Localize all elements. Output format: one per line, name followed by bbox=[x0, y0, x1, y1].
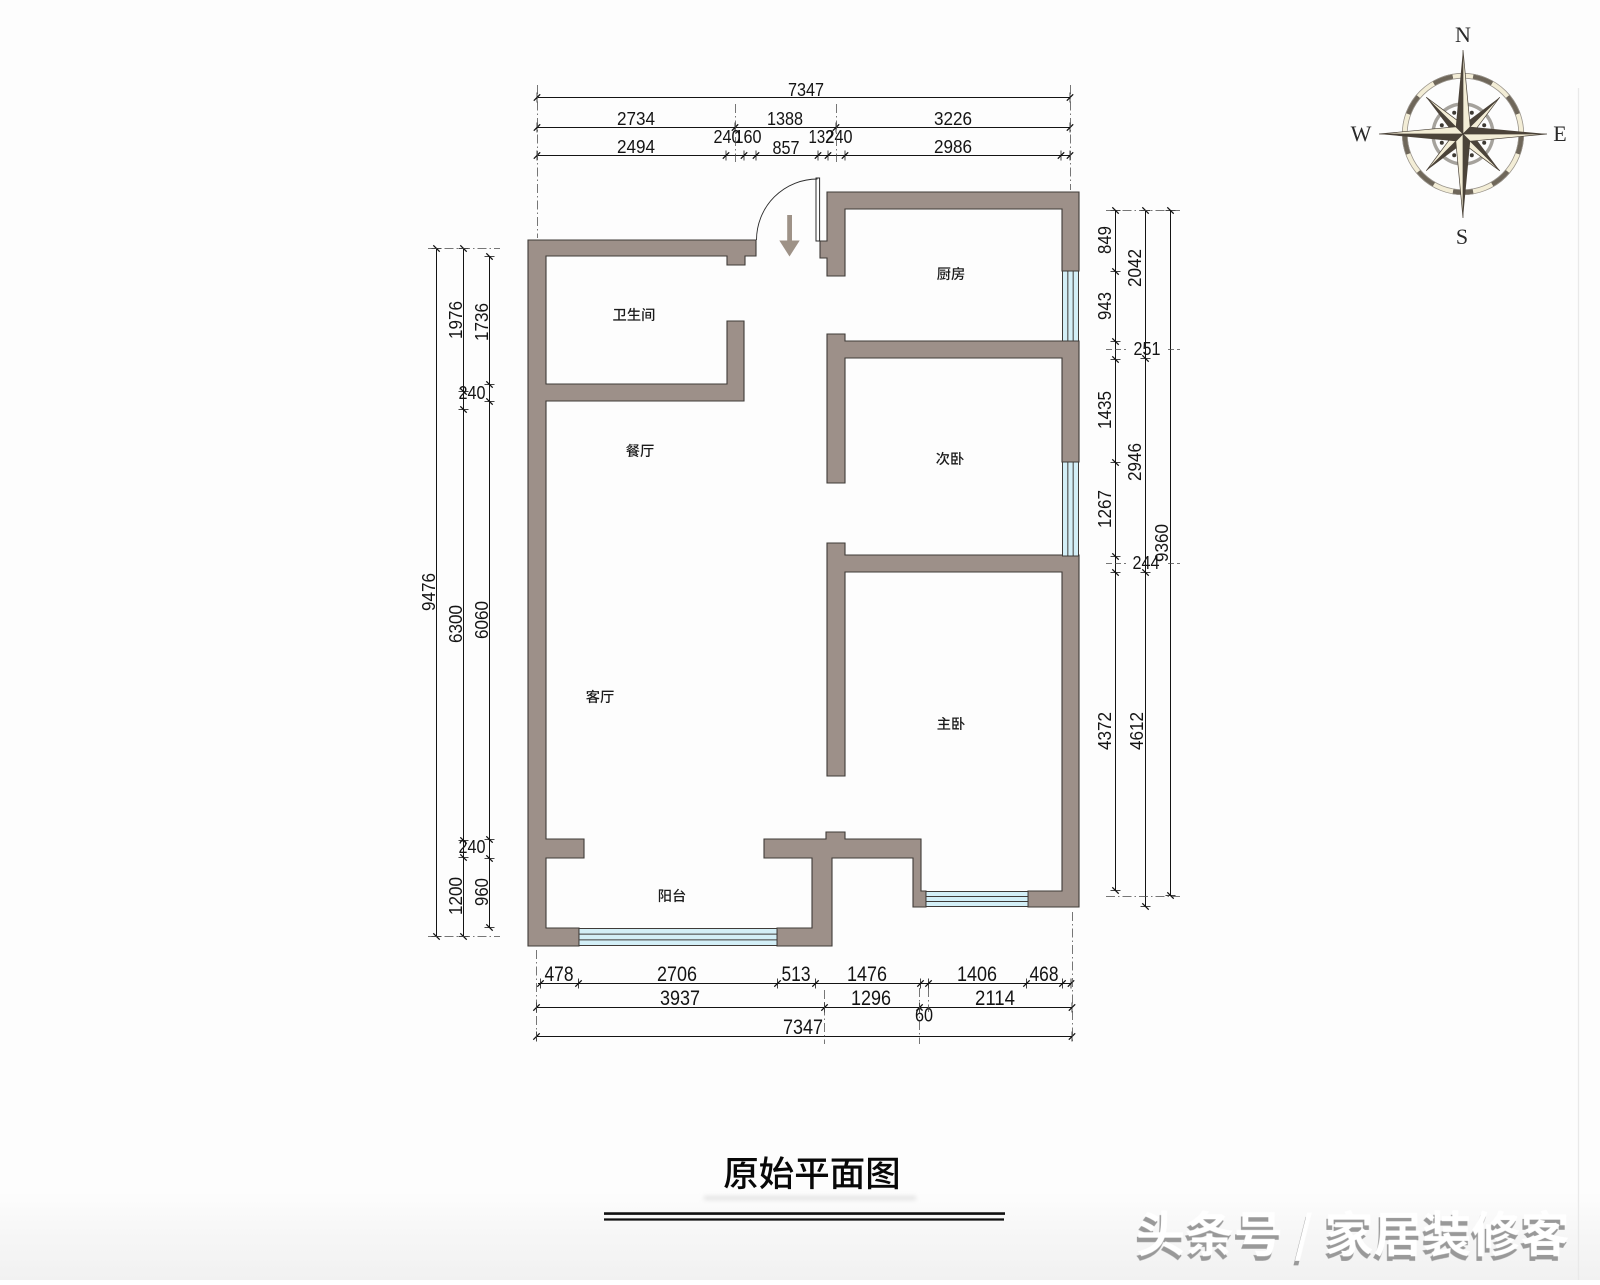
svg-text:3937: 3937 bbox=[660, 987, 700, 1010]
svg-text:240: 240 bbox=[826, 127, 853, 147]
svg-text:478: 478 bbox=[545, 963, 574, 986]
svg-text:943: 943 bbox=[1095, 292, 1115, 320]
svg-text:1736: 1736 bbox=[472, 303, 492, 341]
svg-text:240: 240 bbox=[459, 383, 486, 403]
svg-text:1435: 1435 bbox=[1095, 391, 1115, 429]
svg-text:W: W bbox=[1351, 121, 1372, 146]
svg-text:4372: 4372 bbox=[1095, 712, 1115, 750]
svg-text:849: 849 bbox=[1095, 226, 1115, 254]
svg-text:468: 468 bbox=[1030, 963, 1059, 986]
svg-text:2042: 2042 bbox=[1125, 249, 1145, 287]
svg-text:S: S bbox=[1456, 224, 1468, 249]
svg-text:960: 960 bbox=[472, 878, 492, 906]
svg-text:1406: 1406 bbox=[957, 963, 997, 986]
svg-text:2114: 2114 bbox=[975, 987, 1015, 1010]
svg-text:7347: 7347 bbox=[788, 80, 824, 100]
svg-text:6060: 6060 bbox=[472, 601, 492, 639]
svg-text:513: 513 bbox=[782, 963, 811, 986]
svg-text:4612: 4612 bbox=[1127, 712, 1147, 750]
svg-text:857: 857 bbox=[773, 138, 800, 158]
svg-text:N: N bbox=[1455, 22, 1471, 47]
svg-text:3226: 3226 bbox=[934, 109, 972, 129]
svg-text:160: 160 bbox=[735, 127, 762, 147]
svg-text:2986: 2986 bbox=[934, 137, 972, 157]
svg-text:1976: 1976 bbox=[446, 301, 466, 339]
svg-text:1267: 1267 bbox=[1095, 490, 1115, 528]
svg-text:2946: 2946 bbox=[1125, 443, 1145, 481]
svg-text:240: 240 bbox=[459, 837, 486, 857]
svg-text:1296: 1296 bbox=[851, 987, 891, 1010]
svg-text:2706: 2706 bbox=[657, 963, 697, 986]
svg-text:9476: 9476 bbox=[419, 573, 439, 611]
svg-text:E: E bbox=[1553, 121, 1566, 146]
svg-text:2494: 2494 bbox=[617, 137, 655, 157]
svg-text:244: 244 bbox=[1133, 553, 1160, 573]
svg-text:7347: 7347 bbox=[783, 1016, 823, 1039]
svg-text:251: 251 bbox=[1134, 339, 1161, 359]
svg-text:2734: 2734 bbox=[617, 109, 655, 129]
svg-text:1388: 1388 bbox=[767, 109, 803, 129]
svg-text:1476: 1476 bbox=[847, 963, 887, 986]
svg-text:6300: 6300 bbox=[446, 605, 466, 643]
svg-text:60: 60 bbox=[915, 1006, 933, 1027]
svg-text:1200: 1200 bbox=[446, 877, 466, 915]
